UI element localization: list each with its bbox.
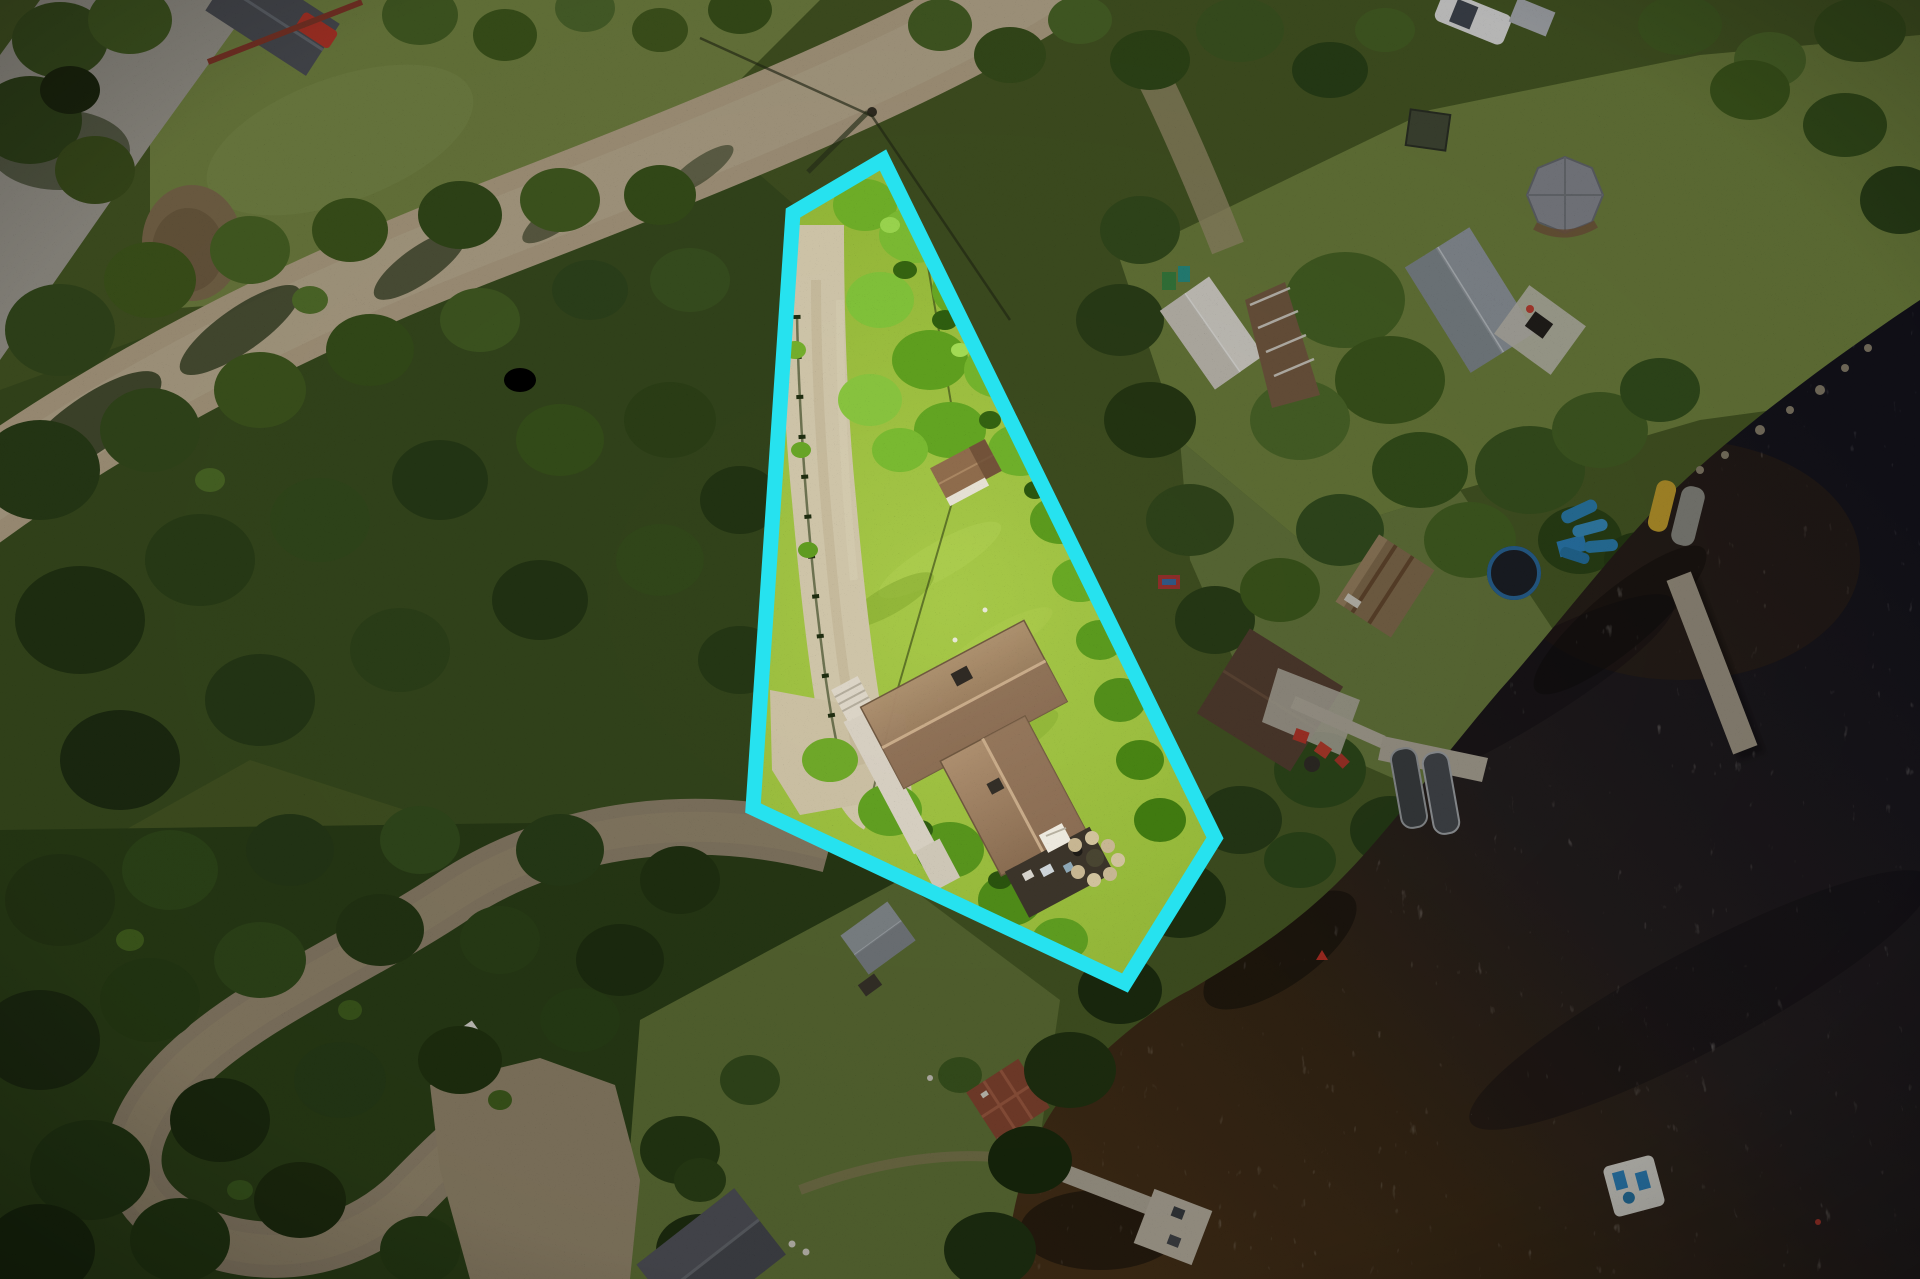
film-grain [0,0,1920,1279]
aerial-photo: Aerial drone photo of lakefront lot with… [0,0,1920,1279]
screenshot-root: Aerial drone photo of lakefront lot with… [0,0,1920,1279]
